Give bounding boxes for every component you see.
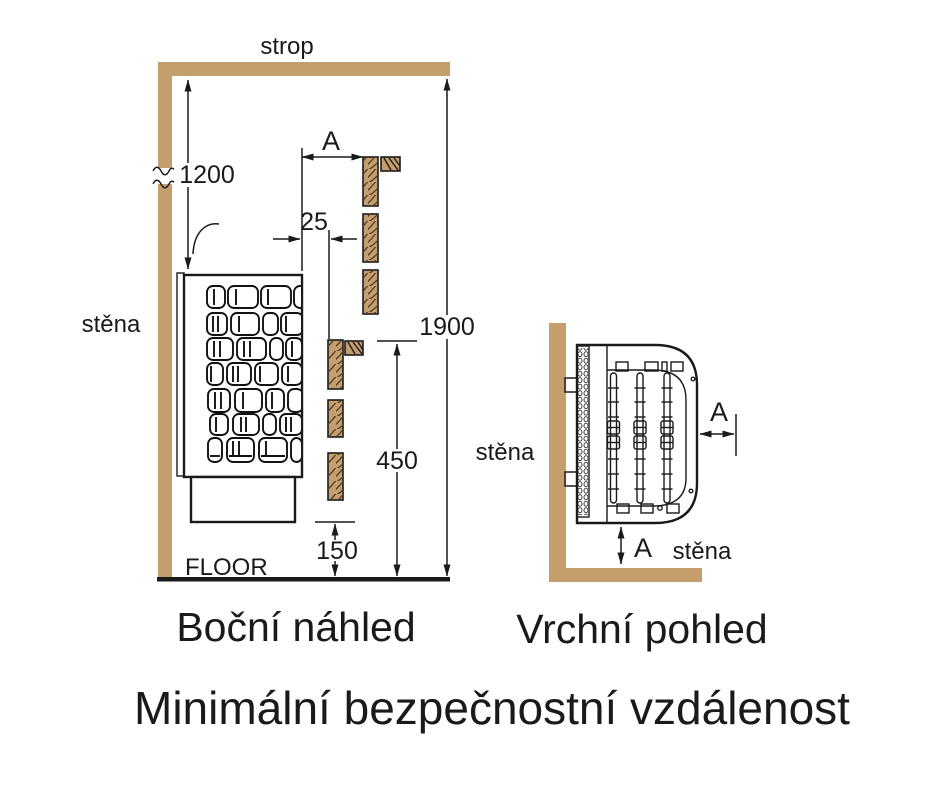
strip-texture (578, 348, 588, 515)
heater-base (191, 477, 295, 522)
diagram-canvas: 1200 A 25 1900 450 (0, 0, 934, 785)
top-wall-left-beam (549, 323, 566, 582)
batten-end-block (381, 157, 400, 171)
protective-battens-upper (363, 157, 400, 314)
wall-label: stěna (82, 311, 141, 338)
page-title: Minimální bezpečnostní vzdálenost (134, 682, 850, 734)
ceiling-label: strop (260, 33, 313, 60)
dim-a-top: A (302, 126, 363, 271)
top-view: A A stěna stěna (476, 323, 736, 582)
dim-1900: 1900 (419, 79, 475, 576)
dim-a-top-label: A (322, 126, 340, 156)
dim-150-label: 150 (316, 537, 358, 565)
dim-25-label: 25 (300, 208, 328, 236)
mount-tab (565, 472, 577, 486)
dim-150: 150 (315, 522, 359, 576)
wall-beam (158, 62, 172, 577)
dim-450-label: 450 (376, 447, 418, 475)
dim-450: 450 (374, 341, 420, 576)
ceiling-beam (158, 62, 450, 76)
top-wall-bottom-label: stěna (673, 538, 732, 565)
heater-top-view (565, 345, 697, 523)
dim-a-right-label: A (710, 397, 728, 427)
diagram-page: 1200 A 25 1900 450 (0, 0, 934, 785)
heater-side-view (177, 224, 306, 522)
top-wall-left-label: stěna (476, 439, 535, 466)
dim-1200-label: 1200 (179, 161, 235, 189)
dim-a-bottom-label: A (634, 533, 652, 563)
sensor-cable (193, 224, 219, 254)
dim-a-right: A (700, 397, 736, 456)
top-view-caption: Vrchní pohled (516, 606, 768, 652)
dim-1900-label: 1900 (419, 313, 475, 341)
mount-tab (565, 378, 577, 392)
dim-1200: 1200 (179, 80, 235, 269)
batten-end-block (345, 341, 363, 355)
top-wall-bottom-beam (549, 568, 702, 582)
floor-label: FLOOR (185, 554, 268, 581)
protective-battens-lower (328, 340, 363, 500)
side-view-caption: Boční náhled (176, 604, 415, 650)
side-view: 1200 A 25 1900 450 (82, 33, 475, 582)
dim-a-bottom: A (621, 527, 652, 564)
